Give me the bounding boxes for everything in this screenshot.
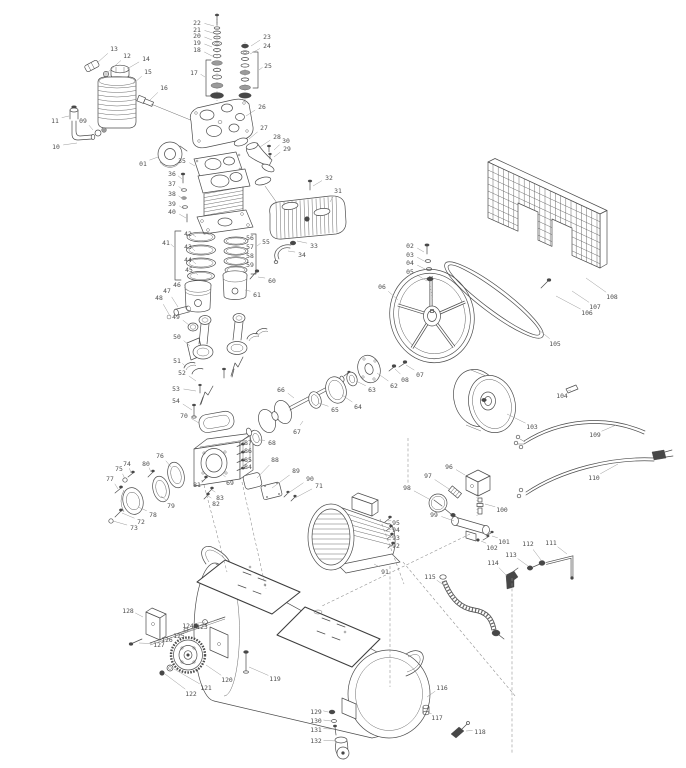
part-label-122: 122: [165, 674, 197, 698]
svg-text:122: 122: [185, 690, 197, 698]
svg-text:74: 74: [123, 460, 131, 468]
svg-text:61: 61: [253, 291, 261, 299]
bracket-25: [253, 52, 258, 88]
svg-text:13: 13: [110, 45, 118, 53]
part-label-55: 55: [257, 238, 270, 246]
part-label-28: 28: [260, 133, 281, 147]
part-label-76: 76: [156, 452, 171, 467]
svg-text:75: 75: [115, 465, 123, 473]
svg-text:60: 60: [268, 277, 276, 285]
manifold: [452, 494, 494, 541]
crankcase-cover: [198, 410, 236, 434]
svg-text:43: 43: [184, 243, 192, 251]
svg-text:46: 46: [173, 281, 181, 289]
part-label-108: 108: [586, 278, 618, 301]
svg-text:113: 113: [505, 551, 517, 559]
wheel: [171, 638, 205, 673]
cylinder-bolts: [181, 173, 187, 222]
svg-text:19: 19: [193, 39, 201, 47]
svg-text:59: 59: [246, 261, 254, 269]
part-label-96: 96: [445, 463, 465, 475]
part-label-87: 87: [243, 439, 252, 447]
svg-text:02: 02: [406, 242, 414, 250]
part-label-48: 48: [155, 294, 170, 316]
svg-text:118: 118: [474, 728, 486, 736]
pulley-key: [566, 385, 578, 393]
drain-petcock: [451, 722, 470, 739]
svg-text:68: 68: [268, 439, 276, 447]
part-label-49: 49: [172, 313, 189, 325]
svg-text:102: 102: [486, 544, 498, 552]
svg-text:101: 101: [498, 538, 510, 546]
svg-text:66: 66: [277, 386, 285, 394]
part-label-111: 111: [545, 539, 567, 554]
svg-text:117: 117: [431, 714, 443, 722]
svg-text:107: 107: [589, 303, 601, 311]
part-label-36: 36: [168, 170, 182, 179]
svg-text:112: 112: [522, 540, 534, 548]
svg-text:93: 93: [392, 534, 400, 542]
svg-text:131: 131: [310, 726, 322, 734]
svg-text:53: 53: [172, 385, 180, 393]
part-label-77: 77: [106, 475, 118, 489]
svg-text:26: 26: [258, 103, 266, 111]
svg-text:88: 88: [271, 456, 279, 464]
svg-text:07: 07: [416, 371, 424, 379]
part-label-52: 52: [178, 369, 196, 381]
part-label-106: 106: [556, 296, 593, 317]
svg-text:108: 108: [606, 293, 618, 301]
svg-text:111: 111: [545, 539, 557, 547]
svg-text:84: 84: [244, 463, 252, 471]
part-label-113: 113: [505, 551, 528, 566]
svg-text:103: 103: [526, 423, 538, 431]
part-label-41: 41: [162, 239, 174, 247]
svg-text:63: 63: [368, 386, 376, 394]
part-label-33: 33: [297, 241, 318, 250]
svg-text:28: 28: [273, 133, 281, 141]
part-label-61: 61: [245, 290, 261, 299]
svg-text:11: 11: [51, 117, 59, 125]
part-label-45: 45: [185, 266, 198, 275]
svg-text:69: 69: [226, 479, 234, 487]
svg-text:124: 124: [182, 622, 194, 630]
part-label-56: 56: [245, 234, 254, 242]
svg-text:42: 42: [184, 230, 192, 238]
part-label-89: 89: [272, 467, 300, 488]
svg-text:29: 29: [283, 145, 291, 153]
svg-text:55: 55: [262, 238, 270, 246]
svg-text:09: 09: [79, 117, 87, 125]
part-label-62: 62: [377, 373, 398, 390]
svg-text:24: 24: [263, 42, 271, 50]
svg-text:30: 30: [282, 137, 290, 145]
svg-text:120: 120: [221, 676, 233, 684]
part-label-35: 35: [178, 157, 195, 166]
svg-text:36: 36: [168, 170, 176, 178]
svg-text:18: 18: [193, 46, 201, 54]
part-label-47: 47: [163, 287, 178, 307]
svg-text:51: 51: [173, 357, 181, 365]
part-label-99: 99: [430, 511, 454, 521]
svg-text:128: 128: [122, 607, 134, 615]
exploded-parts-diagram-page: 0102030405060708091011121314151617181920…: [0, 0, 686, 768]
svg-text:64: 64: [354, 403, 362, 411]
part-label-97: 97: [424, 472, 449, 489]
svg-text:21: 21: [193, 26, 201, 34]
part-label-98: 98: [403, 484, 429, 499]
part-label-73: 73: [113, 521, 138, 532]
part-label-100: 100: [485, 504, 508, 514]
flywheel: [380, 260, 484, 372]
part-label-112: 112: [522, 540, 541, 560]
part-label-93: 93: [390, 534, 400, 542]
svg-text:123: 123: [196, 623, 208, 631]
part-label-68: 68: [259, 439, 276, 447]
svg-text:109: 109: [589, 431, 601, 439]
compressor-exploded-diagram: 0102030405060708091011121314151617181920…: [0, 0, 686, 768]
part-label-29: 29: [274, 145, 291, 157]
cylinder-block: [181, 169, 253, 234]
svg-text:132: 132: [310, 737, 322, 745]
svg-text:16: 16: [160, 84, 168, 92]
svg-text:57: 57: [246, 243, 254, 251]
part-label-24: 24: [250, 42, 271, 54]
bracket-17: [206, 60, 211, 96]
part-label-63: 63: [356, 381, 376, 394]
part-label-60: 60: [258, 277, 276, 285]
svg-text:37: 37: [168, 180, 176, 188]
part-label-53: 53: [172, 385, 196, 393]
svg-text:62: 62: [390, 382, 398, 390]
svg-text:25: 25: [264, 62, 272, 70]
side-plates: [243, 472, 297, 501]
svg-text:129: 129: [310, 708, 322, 716]
svg-text:115: 115: [424, 573, 436, 581]
part-label-44: 44: [184, 256, 196, 264]
part-label-132: 132: [310, 737, 336, 745]
svg-text:119: 119: [269, 675, 281, 683]
svg-text:35: 35: [178, 157, 186, 165]
discharge-hose: [440, 575, 504, 639]
svg-text:97: 97: [424, 472, 432, 480]
svg-text:71: 71: [315, 482, 323, 490]
svg-text:90: 90: [306, 475, 314, 483]
svg-text:08: 08: [401, 376, 409, 384]
svg-text:121: 121: [200, 684, 212, 692]
part-label-11: 11: [51, 116, 69, 125]
belt-guard-grille: [488, 159, 607, 289]
svg-text:116: 116: [436, 684, 448, 692]
svg-text:39: 39: [168, 200, 176, 208]
svg-text:34: 34: [298, 251, 306, 259]
svg-text:83: 83: [216, 494, 224, 502]
part-label-25: 25: [259, 62, 272, 70]
part-label-86: 86: [243, 447, 252, 455]
svg-text:52: 52: [178, 369, 186, 377]
svg-text:99: 99: [430, 511, 438, 519]
svg-text:12: 12: [123, 52, 131, 60]
part-label-90: 90: [287, 475, 314, 494]
svg-text:27: 27: [260, 124, 268, 132]
part-label-109: 109: [589, 425, 616, 439]
svg-text:95: 95: [392, 519, 400, 527]
part-label-22: 22: [193, 19, 214, 27]
svg-text:78: 78: [149, 511, 157, 519]
part-label-59: 59: [244, 261, 254, 269]
part-label-114: 114: [487, 559, 507, 576]
svg-text:104: 104: [556, 392, 568, 400]
part-label-38: 38: [168, 190, 183, 199]
svg-text:73: 73: [130, 524, 138, 532]
svg-text:31: 31: [334, 187, 342, 195]
part-label-34: 34: [288, 251, 306, 259]
part-label-66: 66: [277, 386, 294, 398]
svg-text:105: 105: [549, 340, 561, 348]
part-label-37: 37: [168, 180, 183, 190]
svg-text:86: 86: [244, 447, 252, 455]
part-label-74: 74: [123, 460, 131, 473]
svg-text:96: 96: [445, 463, 453, 471]
part-label-54: 54: [172, 397, 192, 410]
svg-text:10: 10: [52, 143, 60, 151]
svg-text:87: 87: [244, 439, 252, 447]
svg-text:92: 92: [392, 542, 400, 550]
svg-text:72: 72: [137, 518, 145, 526]
svg-text:114: 114: [487, 559, 499, 567]
svg-text:04: 04: [406, 259, 414, 267]
part-label-40: 40: [168, 208, 186, 218]
part-label-15: 15: [133, 68, 152, 84]
svg-text:44: 44: [184, 256, 192, 264]
unloader-fitting: [448, 486, 461, 498]
svg-text:56: 56: [246, 234, 254, 242]
part-label-13: 13: [97, 45, 118, 63]
part-label-88: 88: [257, 456, 279, 478]
part-label-50: 50: [173, 333, 190, 346]
valve-stacks: [206, 13, 258, 110]
part-label-107: 107: [572, 291, 601, 311]
svg-text:06: 06: [378, 283, 386, 291]
svg-text:05: 05: [406, 268, 414, 276]
svg-text:45: 45: [185, 266, 193, 274]
svg-text:38: 38: [168, 190, 176, 198]
part-label-19: 19: [193, 39, 212, 47]
svg-text:98: 98: [403, 484, 411, 492]
electric-motor: [308, 493, 400, 573]
bracket-41: [175, 231, 181, 280]
motor-pulley: [447, 364, 522, 438]
part-label-65: 65: [319, 403, 339, 414]
svg-text:48: 48: [155, 294, 163, 302]
svg-text:85: 85: [244, 456, 252, 464]
part-label-16: 16: [150, 84, 168, 100]
svg-text:14: 14: [142, 55, 150, 63]
part-label-105: 105: [539, 330, 561, 348]
svg-text:40: 40: [168, 208, 176, 216]
outlet-pipe: [527, 557, 573, 580]
svg-text:89: 89: [292, 467, 300, 475]
part-label-57: 57: [245, 243, 254, 251]
part-label-92: 92: [391, 542, 400, 550]
svg-text:33: 33: [310, 242, 318, 250]
part-label-84: 84: [243, 463, 252, 471]
part-label-32: 32: [313, 174, 333, 186]
svg-text:49: 49: [172, 313, 180, 321]
svg-text:22: 22: [193, 19, 201, 27]
svg-text:15: 15: [144, 68, 152, 76]
part-label-71: 71: [295, 482, 323, 498]
air-filter: [84, 60, 199, 132]
part-label-10: 10: [52, 143, 77, 151]
part-label-09: 09: [79, 117, 93, 130]
svg-text:130: 130: [310, 717, 322, 725]
svg-text:17: 17: [190, 69, 198, 77]
svg-text:94: 94: [392, 526, 400, 534]
part-label-67: 67: [293, 421, 303, 436]
svg-text:100: 100: [496, 506, 508, 514]
svg-text:81: 81: [193, 481, 201, 489]
svg-text:23: 23: [263, 33, 271, 41]
svg-text:76: 76: [156, 452, 164, 460]
part-label-102: 102: [481, 541, 498, 552]
svg-text:65: 65: [331, 406, 339, 414]
svg-text:77: 77: [106, 475, 114, 483]
svg-text:41: 41: [162, 239, 170, 247]
svg-text:67: 67: [293, 428, 301, 436]
piston-ring-set-left: [175, 231, 216, 281]
svg-text:70: 70: [180, 412, 188, 420]
pressure-switch: [466, 470, 490, 496]
part-label-58: 58: [245, 252, 254, 260]
svg-text:54: 54: [172, 397, 180, 405]
svg-text:47: 47: [163, 287, 171, 295]
part-label-18: 18: [193, 46, 212, 56]
svg-text:91: 91: [381, 568, 389, 576]
svg-text:32: 32: [325, 174, 333, 182]
svg-text:110: 110: [588, 474, 600, 482]
part-label-51: 51: [173, 357, 186, 367]
part-label-17: 17: [190, 69, 205, 77]
part-label-128: 128: [122, 607, 143, 617]
svg-text:50: 50: [173, 333, 181, 341]
svg-text:127: 127: [153, 641, 165, 649]
part-label-01: 01: [139, 157, 158, 168]
svg-text:03: 03: [406, 251, 414, 259]
part-label-85: 85: [243, 456, 252, 464]
svg-text:79: 79: [167, 502, 175, 510]
svg-text:58: 58: [246, 252, 254, 260]
part-label-117: 117: [428, 713, 443, 722]
part-label-80: 80: [142, 460, 151, 472]
part-label-21: 21: [193, 26, 213, 34]
svg-text:80: 80: [142, 460, 150, 468]
svg-text:01: 01: [139, 160, 147, 168]
connecting-rods: [184, 314, 268, 419]
part-label-118: 118: [466, 728, 486, 736]
